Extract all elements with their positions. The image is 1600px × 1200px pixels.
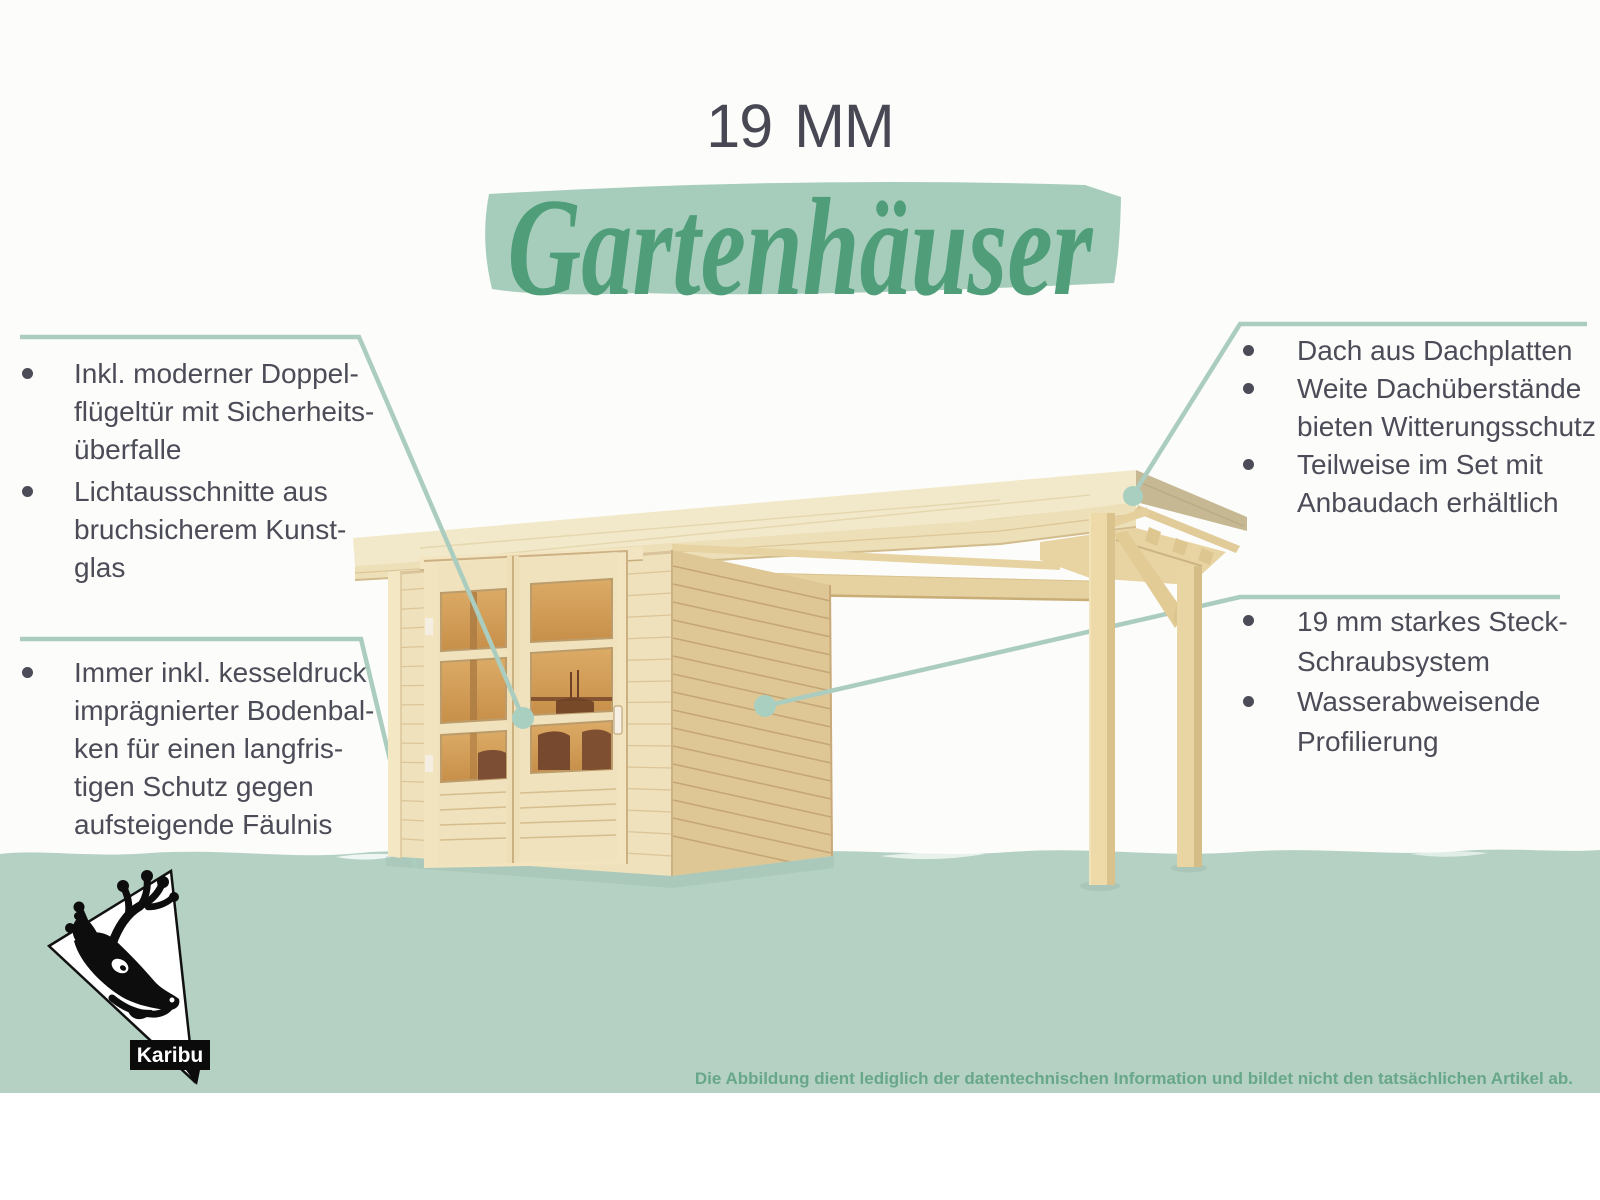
svg-text:Karibu: Karibu	[137, 1044, 204, 1067]
svg-text:Gartenhäuser: Gartenhäuser	[508, 170, 1094, 325]
